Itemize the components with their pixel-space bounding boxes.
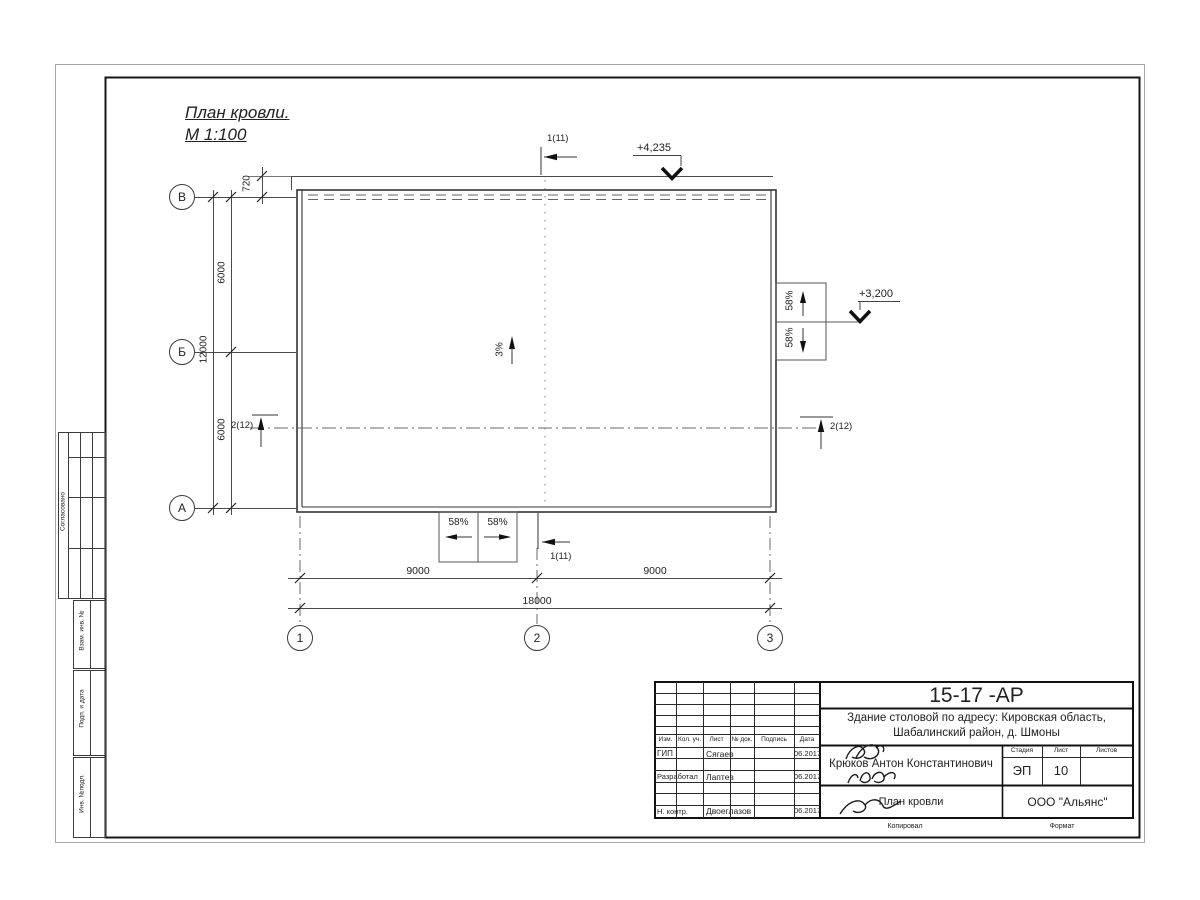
drawing-title-line1: План кровли. — [185, 103, 289, 123]
frame-label-podp-data: Подп. и дата — [79, 674, 86, 744]
titleblock-doc-number: 15-17 -АР — [820, 684, 1133, 708]
header-listov: Листов — [1080, 747, 1133, 754]
row-razrabotal-role: Разработал — [657, 772, 698, 781]
dim-6000-upper: 6000 — [217, 243, 228, 303]
dim-9000-right: 9000 — [625, 565, 685, 577]
dim-18000: 18000 — [507, 595, 567, 607]
titleblock-drawing-title: План кровли — [820, 796, 1002, 808]
axis-label-1: 1 — [297, 631, 304, 645]
header-kol-uch: Кол. уч. — [676, 736, 703, 743]
header-data: Дата — [794, 736, 820, 743]
bottom-dimensions — [288, 516, 782, 624]
axis-bubble-v: В — [169, 184, 195, 210]
axis-bubble-b: Б — [169, 339, 195, 365]
slope-main-label: 3% — [495, 320, 506, 380]
slope-right-lower-label: 58% — [785, 308, 796, 368]
titleblock-sheet: 10 — [1042, 763, 1080, 778]
drawing-scale: М 1:100 — [185, 125, 246, 145]
axis-label-b: Б — [178, 345, 186, 359]
elevation-right-label: +3,200 — [859, 288, 893, 300]
axis-label-2: 2 — [534, 631, 541, 645]
dimension-ticks — [208, 171, 775, 613]
axis-bubble-1: 1 — [287, 625, 313, 651]
kopiroval-label: Копировал — [875, 823, 935, 830]
axis-bubble-3: 3 — [757, 625, 783, 651]
header-list2: Лист — [1042, 747, 1080, 754]
dim-6000-lower: 6000 — [217, 400, 228, 460]
signature-razrabotal — [848, 772, 895, 783]
row-gip-date: 06.2017 — [794, 749, 820, 758]
slope-bottom-left-label: 58% — [439, 517, 478, 528]
header-no-dok: № док. — [730, 736, 754, 743]
section-marks — [252, 147, 833, 549]
format-label: Формат — [1032, 823, 1092, 830]
frame-label-vzam-inv: Взам. инв. № — [79, 596, 86, 666]
header-izm: Изм. — [655, 736, 676, 743]
center-lines — [250, 180, 816, 508]
titleblock-author: Крюков Антон Константинович — [820, 758, 1002, 770]
row-nkontr-role: Н. контр. — [657, 807, 688, 816]
titleblock-object-line1: Здание столовой по адресу: Кировская обл… — [820, 712, 1133, 724]
header-list: Лист — [703, 736, 730, 743]
axis-bubble-2: 2 — [524, 625, 550, 651]
axis-label-v: В — [178, 190, 186, 204]
slope-bottom-right-label: 58% — [478, 517, 517, 528]
row-nkontr-name: Двоеглазов — [706, 806, 751, 816]
dim-720: 720 — [242, 154, 253, 214]
dim-12000: 12000 — [199, 320, 210, 380]
frame-label-inv-podl: Инв. №подл. — [79, 759, 86, 829]
section-2-right-label: 2(12) — [830, 421, 852, 432]
titleblock-company: ООО "Альянс" — [1002, 795, 1133, 809]
row-razrabotal-name: Лаптев — [706, 772, 734, 782]
header-stadia: Стадия — [1002, 747, 1042, 754]
axis-label-3: 3 — [767, 631, 774, 645]
row-razrabotal-date: 06.2017 — [794, 772, 820, 781]
section-1-top-label: 1(11) — [547, 133, 568, 144]
dim-9000-left: 9000 — [388, 565, 448, 577]
roof-outline — [291, 177, 776, 513]
section-2-left-label: 2(12) — [231, 420, 253, 431]
elevation-top-label: +4,235 — [637, 142, 671, 154]
frame-label-soglasovano: Согласовано — [60, 462, 67, 562]
row-nkontr-date: 06.2017 — [794, 806, 820, 815]
titleblock-object-line2: Шабалинский район, д. Шмоны — [820, 727, 1133, 739]
drawing-sheet: План кровли. М 1:100 +4,235 +3,200 1(11)… — [0, 0, 1200, 900]
left-dimensions — [195, 167, 296, 515]
section-1-bottom-label: 1(11) — [550, 551, 571, 562]
signature-gip — [846, 745, 884, 759]
axis-bubble-a: А — [169, 495, 195, 521]
row-gip-role: ГИП — [657, 749, 673, 758]
header-podpis: Подпись — [754, 736, 794, 743]
titleblock-stage: ЭП — [1002, 763, 1042, 778]
row-gip-name: Сягаев — [706, 749, 734, 759]
axis-label-a: А — [178, 501, 186, 515]
